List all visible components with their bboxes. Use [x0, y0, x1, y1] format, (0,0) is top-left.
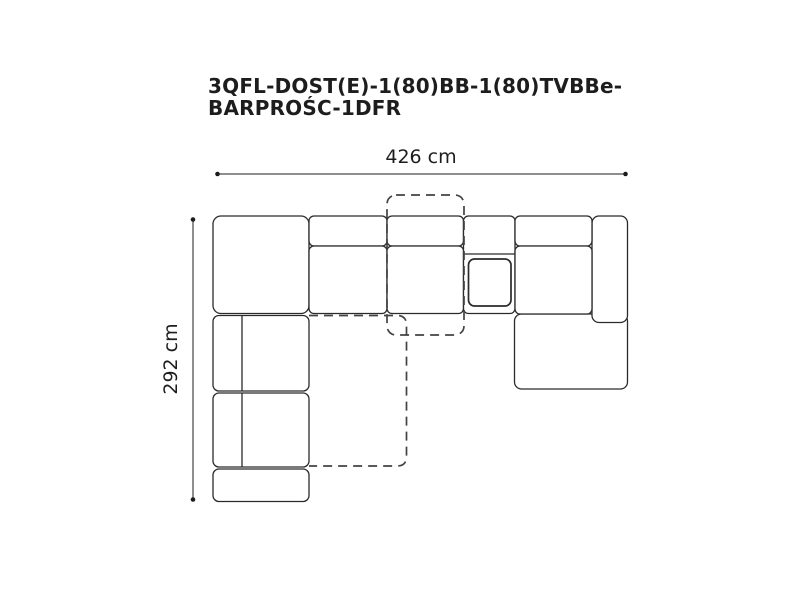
corner-module [213, 216, 309, 314]
left-seat-a-module [213, 316, 309, 392]
bar-tray [469, 259, 512, 306]
depth-dimension-dot-bottom [191, 497, 196, 502]
depth-dimension: 292 cm [160, 217, 195, 502]
width-dimension-label: 426 cm [385, 146, 456, 168]
seat-3-backrest [387, 216, 464, 246]
seat-5-cushion [515, 246, 592, 314]
right-armrest [592, 216, 628, 323]
left-chaise-extension-outline [309, 316, 407, 467]
product-diagram-page: 3QFL-DOST(E)-1(80)BB-1(80)TVBBe- BARPROŚ… [0, 0, 800, 600]
bottom-armrest [213, 469, 309, 502]
sofa-modules [213, 216, 628, 502]
width-dimension-dot-left [215, 172, 220, 177]
ottoman-module [515, 314, 628, 389]
left-seat-b-module [213, 393, 309, 467]
depth-dimension-label: 292 cm [160, 323, 182, 394]
seat-3-cushion [387, 246, 464, 314]
sofa-floorplan-diagram: 426 cm 292 cm [0, 0, 800, 600]
seat-2-cushion [309, 246, 387, 314]
depth-dimension-dot-top [191, 217, 196, 222]
seat-2-backrest [309, 216, 387, 246]
width-dimension-dot-right [623, 172, 628, 177]
width-dimension: 426 cm [215, 146, 628, 176]
seat-5-backrest [515, 216, 592, 246]
